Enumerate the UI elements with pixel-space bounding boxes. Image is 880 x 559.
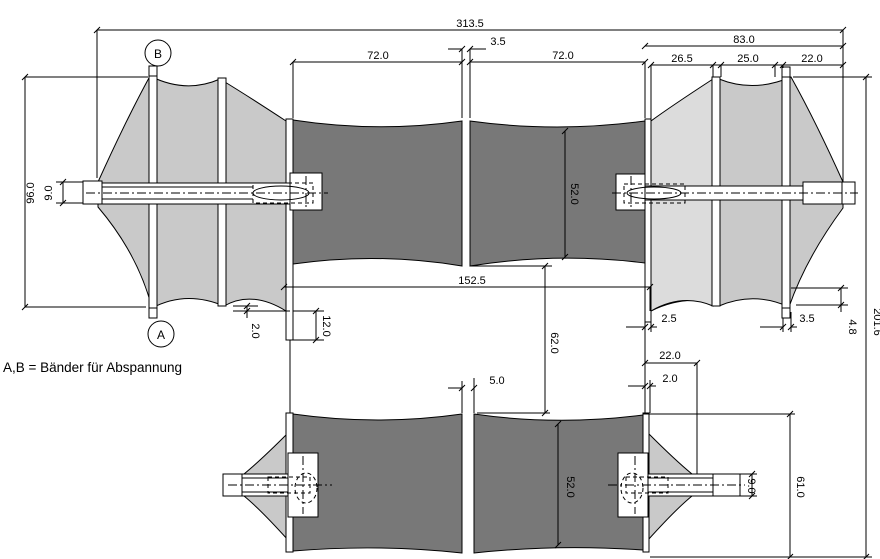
dim-bottom-height: 61.0 [794, 476, 806, 497]
dim-overall-height: 201.6 [871, 308, 880, 336]
dim-panel-72-right: 72.0 [552, 50, 573, 62]
dim-left-height: 96.0 [25, 182, 37, 203]
dim-offset-left-small: 2.0 [249, 323, 261, 338]
dim-wing-seg1: 26.5 [671, 53, 692, 65]
legend-note: A,B = Bänder für Abspannung [3, 360, 182, 375]
tab-top-right [782, 67, 790, 77]
dim-gap-height: 62.0 [548, 332, 560, 353]
dim-wing-seg2: 25.0 [737, 53, 758, 65]
tab-bottom-right [782, 308, 790, 318]
dim-strip-left: 2.5 [661, 313, 676, 325]
dim-plate-offset: 2.0 [662, 373, 677, 385]
technical-drawing-page: 313.5 3.5 72.0 72.0 83.0 26.5 25.0 22.0 … [0, 0, 880, 559]
dim-corner-drop: 12.0 [320, 315, 332, 336]
dim-apex-offset: 22.0 [659, 350, 680, 362]
dim-panel-height-bottom: 52.0 [564, 476, 576, 497]
dim-strip-right: 3.5 [799, 313, 814, 325]
drawing-canvas: 313.5 3.5 72.0 72.0 83.0 26.5 25.0 22.0 … [0, 0, 880, 559]
dim-wing-total: 83.0 [733, 34, 754, 46]
dim-panel-72-left: 72.0 [367, 50, 388, 62]
dim-rod-height-left: 9.0 [43, 185, 55, 200]
dim-rod-height-bottom: 9.0 [745, 478, 757, 493]
dim-center-gap-bottom: 5.0 [489, 375, 504, 387]
dim-overall-width: 313.5 [456, 18, 484, 30]
tab-b-top-left [149, 66, 157, 76]
tab-a-bottom-left [149, 308, 157, 318]
marker-label-a: A [157, 328, 165, 342]
dim-mid-width: 152.5 [458, 275, 486, 287]
edge-strip-left [286, 119, 293, 340]
dim-center-gap-top: 3.5 [490, 36, 505, 48]
marker-label-b: B [154, 47, 162, 61]
dim-panel-height-top: 52.0 [568, 183, 580, 204]
dim-wing-seg3: 22.0 [801, 53, 822, 65]
dim-edge-drop: 4.8 [846, 319, 858, 334]
